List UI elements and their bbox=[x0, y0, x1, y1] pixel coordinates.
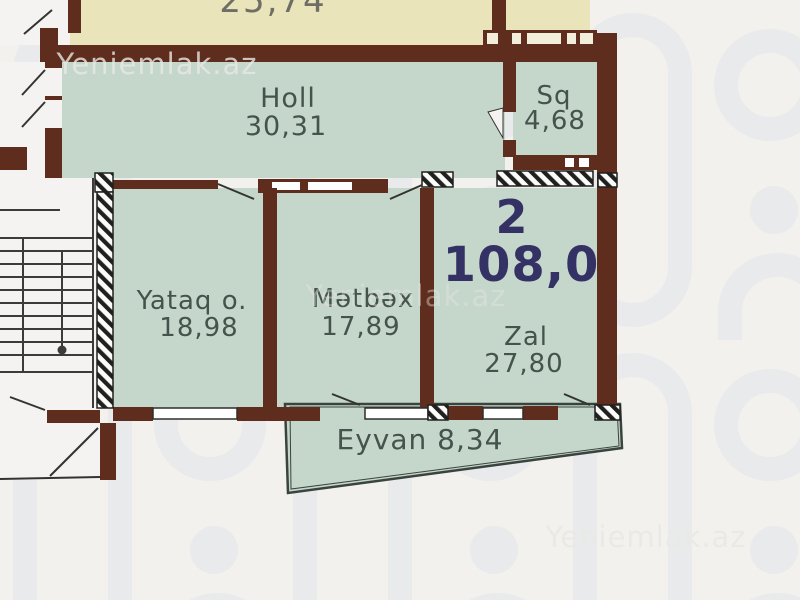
room-zal-name: Zal bbox=[504, 322, 548, 352]
floor-plan-svg: Yeniemlak.az 25,74 bbox=[0, 0, 800, 600]
room-sq-area: 4,68 bbox=[524, 106, 586, 136]
room-zal-area: 27,80 bbox=[484, 349, 563, 379]
apartment-number: 2 bbox=[495, 190, 528, 244]
upper-apartment-room: 25,74 bbox=[68, 0, 597, 47]
floor-plan-page: Yeniemlak.az 25,74 bbox=[0, 0, 800, 600]
room-metbex-area: 17,89 bbox=[321, 312, 400, 342]
room-eyvan-label: Eyvan 8,34 bbox=[337, 423, 504, 456]
room-holl-area: 30,31 bbox=[245, 111, 327, 142]
room-yataq-name: Yataq o. bbox=[136, 286, 248, 316]
watermark-top-left: Yeniemlak.az bbox=[55, 47, 257, 81]
watermark-center: Yeniemlak.az bbox=[304, 279, 506, 313]
room-yataq-area: 18,98 bbox=[159, 313, 238, 343]
watermark-bottom-right: Yeniemlak.az bbox=[544, 520, 746, 554]
upper-room-area-cut: 25,74 bbox=[219, 0, 326, 21]
room-holl-name: Holl bbox=[260, 83, 316, 114]
